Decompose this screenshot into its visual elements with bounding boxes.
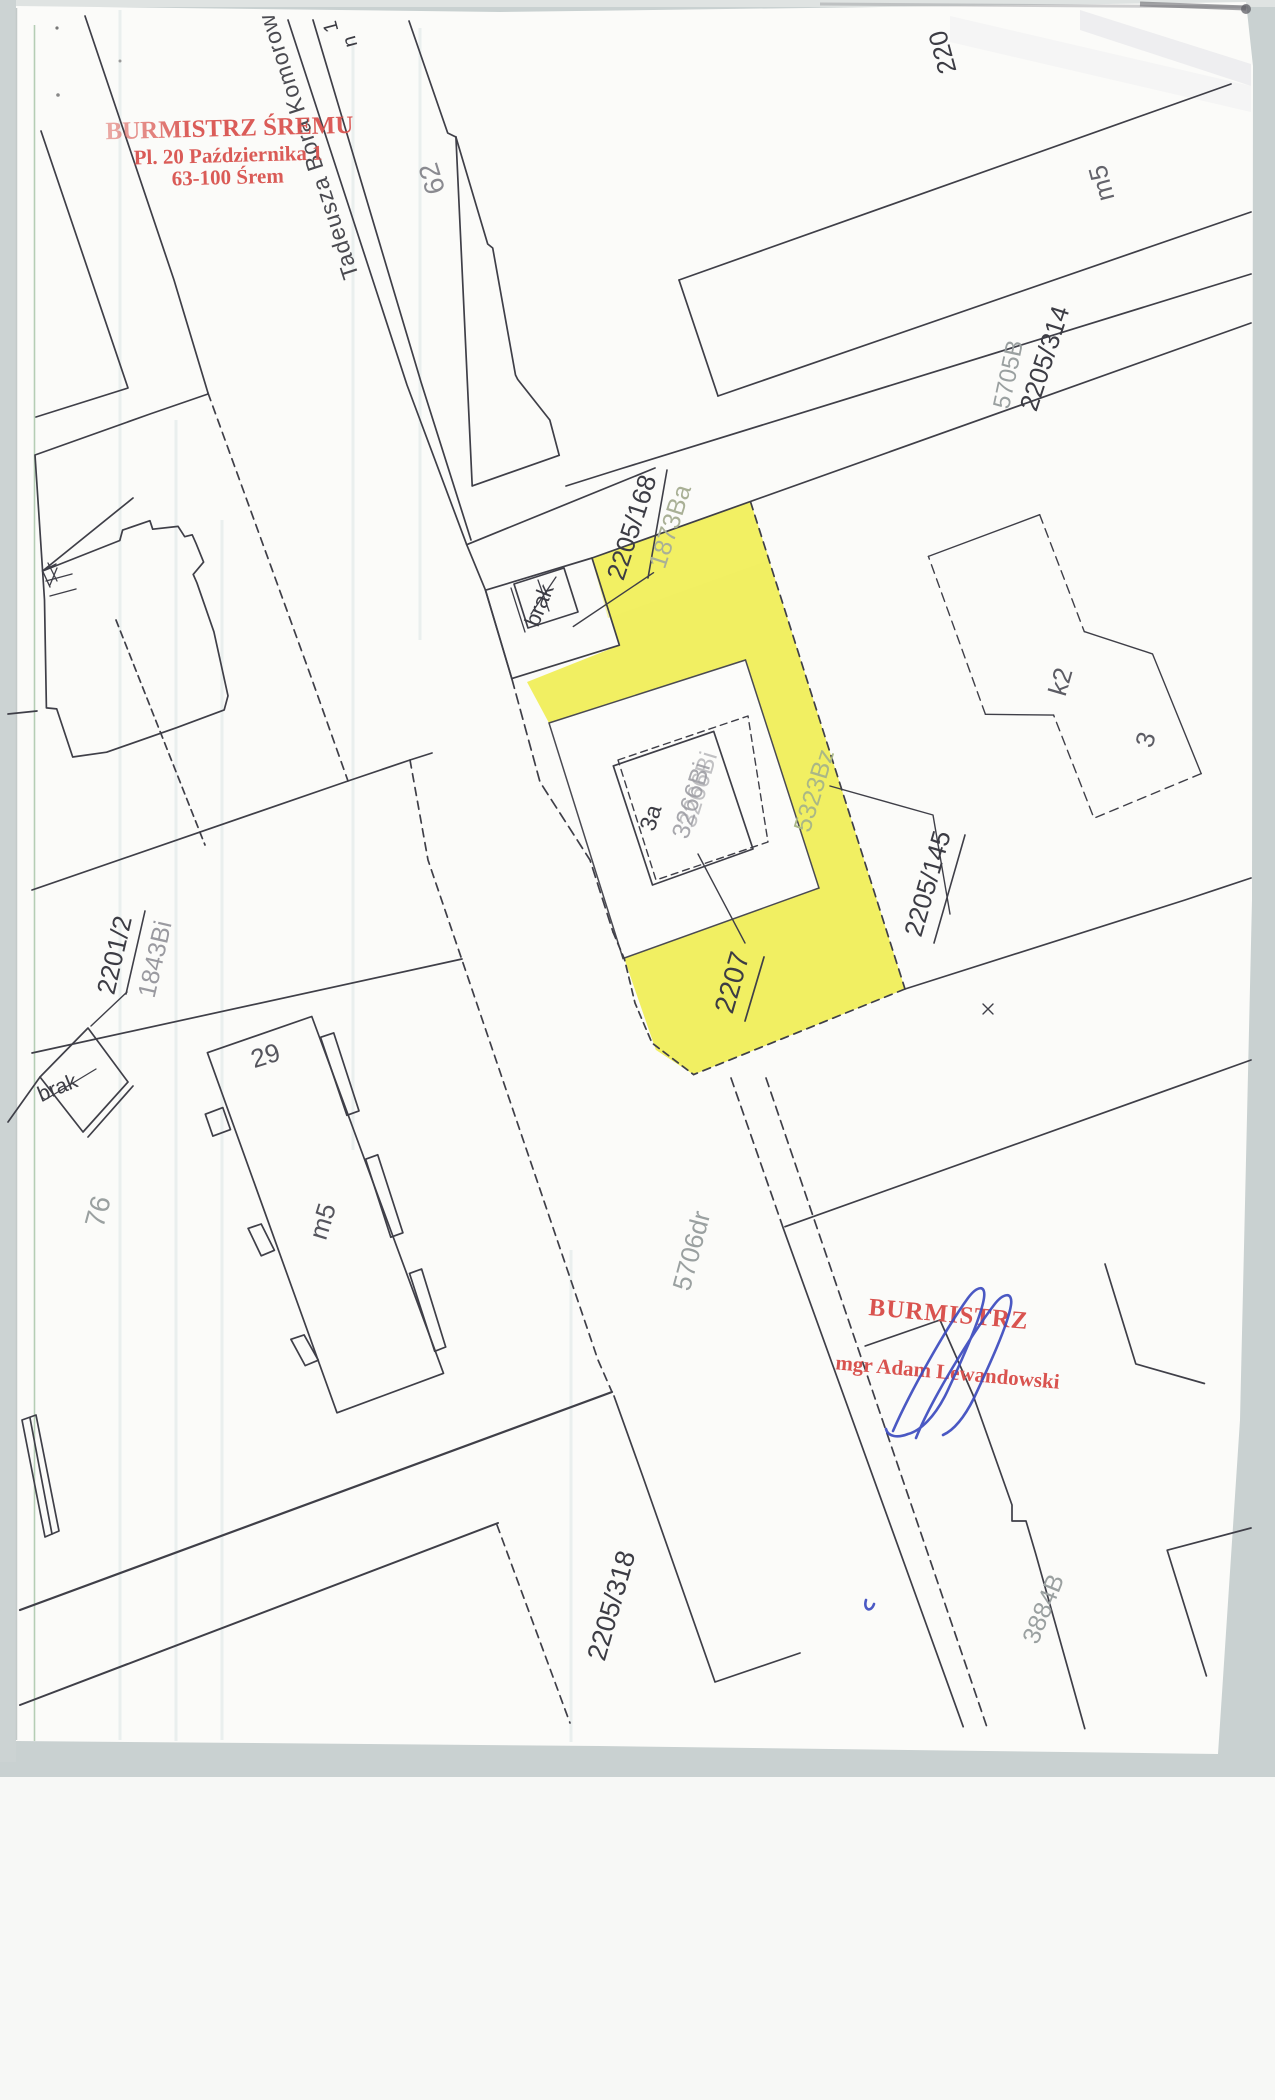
svg-text:63-100 Śrem: 63-100 Śrem [171, 164, 284, 191]
